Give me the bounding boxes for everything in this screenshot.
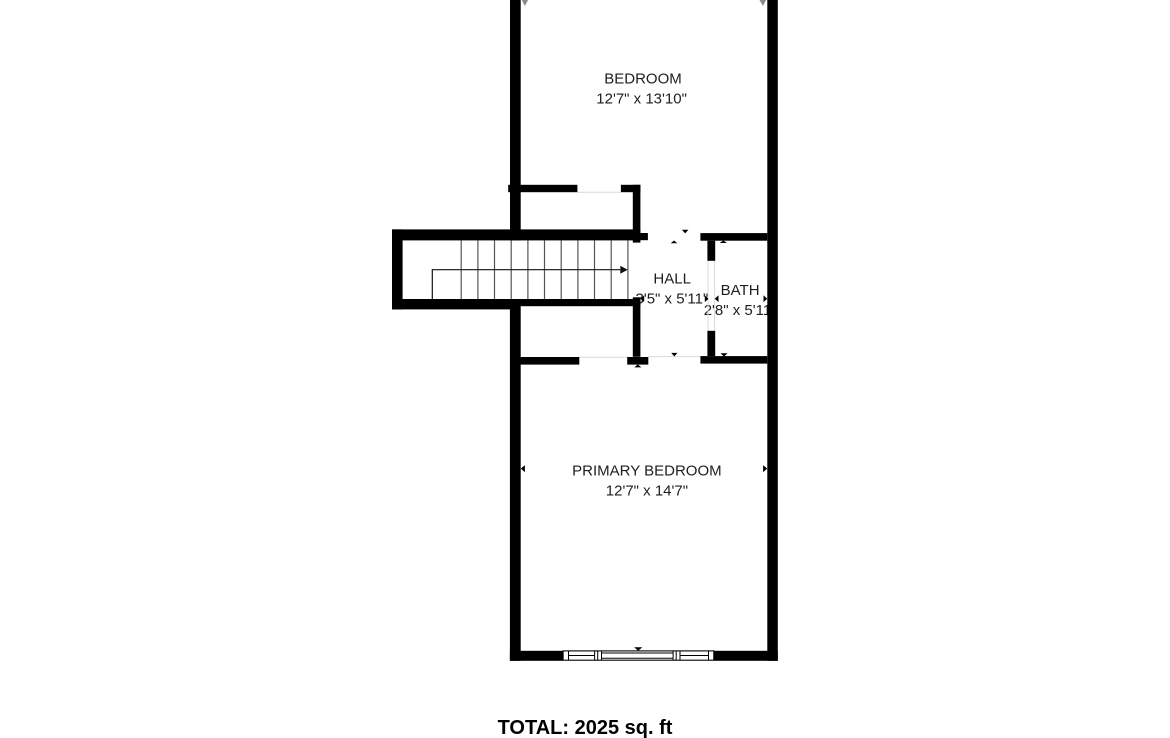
svg-text:3'5" x 5'11": 3'5" x 5'11" <box>635 290 708 307</box>
svg-text:12'7" x 13'10": 12'7" x 13'10" <box>596 91 687 108</box>
svg-text:BEDROOM: BEDROOM <box>604 71 682 88</box>
svg-text:PRIMARY BEDROOM: PRIMARY BEDROOM <box>572 463 721 480</box>
svg-text:TOTAL: 2025 sq. ft: TOTAL: 2025 sq. ft <box>498 717 673 738</box>
svg-text:HALL: HALL <box>653 270 691 287</box>
svg-text:BATH: BATH <box>721 282 760 299</box>
svg-text:12'7" x 14'7": 12'7" x 14'7" <box>606 483 688 500</box>
